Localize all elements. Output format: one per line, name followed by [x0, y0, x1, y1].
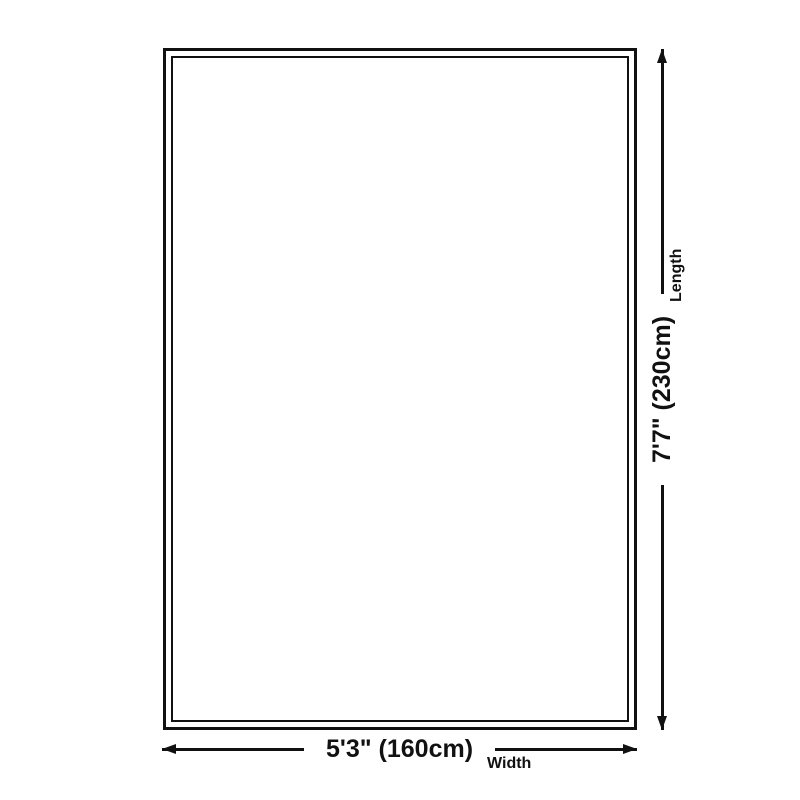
arrow-right-icon [623, 744, 637, 754]
length-arrow-up: Length [661, 49, 664, 294]
length-value: 7'7" (230cm) [650, 316, 675, 463]
width-arrow-left [162, 748, 304, 751]
rug-outline [163, 48, 637, 730]
width-label: Width [487, 756, 531, 772]
length-dimension: 7'7" (230cm) Length [642, 49, 682, 730]
width-arrow-right: Width [495, 748, 637, 751]
rug-outline-inner-border [171, 56, 629, 722]
width-dimension: 5'3" (160cm) Width [162, 729, 637, 769]
length-arrow-down [661, 485, 664, 730]
arrow-down-icon [657, 716, 667, 730]
arrow-left-icon [162, 744, 176, 754]
width-value: 5'3" (160cm) [326, 737, 473, 762]
arrow-up-icon [657, 49, 667, 63]
length-label: Length [669, 249, 685, 302]
